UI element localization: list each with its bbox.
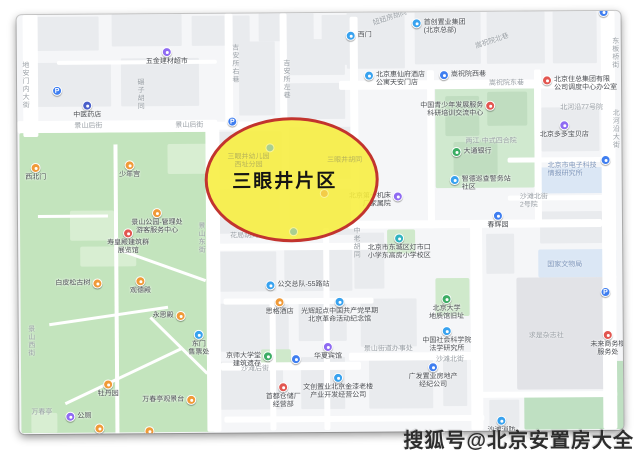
park-admin-icon[interactable] — [152, 208, 162, 218]
viewing-platform-icon[interactable] — [186, 395, 196, 405]
park-structure — [167, 144, 207, 174]
sanyanjing-kindergarten-icon — [265, 143, 274, 152]
memorial-hall-label: 光辉起点中国共产党早期北京革命活动纪念馆 — [301, 308, 378, 325]
hardware-store-icon[interactable] — [162, 47, 172, 57]
parking-icon[interactable]: P — [227, 117, 237, 127]
construction-group-office-label: 北京住总集团有限公司调度中心办公室 — [554, 76, 617, 92]
huaxia-hotel-label: 华夏宾馆 — [314, 353, 342, 361]
ancient-pine-label: 白皮松古树 — [55, 280, 90, 288]
beiheyan-st: 北河沿大街 — [611, 109, 619, 149]
park-poi-icon[interactable] — [144, 426, 154, 434]
yongsi-hall-icon[interactable] — [176, 311, 186, 321]
cass-law-institute-label: 中国社会科学院法学研究所 — [422, 337, 471, 353]
imperial-university-site-label: 京师大学堂建筑遗存 — [226, 352, 261, 368]
road — [601, 11, 618, 429]
ghost-poi — [289, 227, 298, 237]
songzhuyuan-east-lane: 嵩祝院东巷 — [489, 80, 524, 88]
city-block — [553, 11, 597, 63]
memorial-hall-icon[interactable] — [335, 297, 345, 307]
shatan-2-compound: 沙滩北街2号院 — [520, 193, 548, 209]
police-post-label: 智德巡查警务站社区 — [462, 176, 511, 192]
poi-icon[interactable] — [291, 354, 301, 364]
subdistrict-office: 景山街道办事处 — [364, 345, 413, 353]
office-building-icon[interactable] — [603, 330, 613, 340]
jingshan-east-st: 景山东街 — [197, 222, 205, 254]
road — [224, 415, 484, 423]
highlight-label: 三眼井片区 — [232, 166, 351, 194]
park-east-gate-label: 东门售票处 — [188, 341, 209, 357]
sanyanjing-hutong: 三眼井胡同 — [345, 157, 380, 165]
shatan-north-st: 沙滩北街 — [436, 356, 464, 364]
park-northwest-gate-icon[interactable] — [31, 163, 41, 173]
songzhuyuan-west-lane-label: 嵩祝院西巷 — [451, 71, 486, 79]
road — [479, 391, 617, 398]
warehouse-label: 首都仓储厂经营部 — [266, 393, 301, 409]
peony-garden-icon[interactable] — [103, 379, 113, 389]
dianmennei-st: 地安门内大街 — [21, 61, 29, 109]
shouhuang-hall-label: 寿皇殿建筑群展览馆 — [107, 239, 149, 255]
dongbanqiao-st: 东板桥街 — [611, 37, 619, 69]
chunhui-garden-label: 春辉园 — [487, 222, 508, 230]
road — [224, 298, 374, 305]
hotel-apartment-label: 北京惠仙府酒店公寓天安门店 — [376, 71, 425, 87]
youth-center-label: 中国青少年发展服务科研培训交流中心 — [420, 102, 483, 118]
electronics-institute: 北京市电子科技情报研究所 — [548, 162, 597, 178]
courtyard-residence: 两江·中式四合院 — [465, 138, 516, 146]
construction-group-office-icon[interactable] — [542, 75, 552, 85]
park-path — [38, 214, 108, 217]
baby-store-label: 北京多多宝贝店 — [540, 131, 589, 139]
ancient-pine-icon[interactable] — [92, 279, 102, 289]
road — [427, 70, 435, 228]
road — [470, 224, 483, 430]
police-post-icon[interactable] — [450, 175, 460, 185]
city-block — [239, 41, 276, 115]
parking-icon[interactable]: P — [600, 287, 610, 297]
map-photo: 地安门内大街碾子胡同吉安所右巷吉安所左巷景山后街景山后街景山东街景山西街妞妞房胡… — [17, 11, 624, 434]
jingshan-back-st: 景山后街 — [74, 123, 102, 131]
bank-icon[interactable] — [451, 147, 461, 157]
city-block — [33, 62, 111, 107]
warehouse-icon[interactable] — [278, 382, 288, 392]
office-building-label: 未来商务楼服务处 — [590, 341, 623, 357]
west-gate-icon[interactable] — [346, 31, 356, 41]
city-block — [486, 234, 514, 274]
road — [270, 298, 277, 430]
youth-center-icon[interactable] — [485, 101, 495, 111]
youth-palace-icon[interactable] — [125, 160, 135, 170]
wanchun-pavilion: 万春亭 — [31, 409, 52, 417]
city-blocks-layer — [17, 11, 621, 15]
city-block — [112, 14, 182, 46]
guande-hall-label: 观德殿 — [130, 287, 151, 295]
park-east-gate-icon[interactable] — [194, 330, 204, 340]
realty-agency-label: 广发置业房地产经纪公司 — [409, 373, 458, 389]
park-admin-label: 景山公园-管理处游客服务中心 — [131, 219, 182, 235]
realty-agency-icon[interactable] — [428, 362, 438, 372]
pku-geology-hall-icon[interactable] — [442, 294, 452, 304]
bus-stop-icon[interactable] — [265, 280, 275, 290]
tcm-pharmacy-icon[interactable] — [82, 101, 92, 111]
nianzi-hutong: 碾子胡同 — [136, 78, 144, 110]
tcm-pharmacy-label: 中医药店 — [73, 112, 101, 120]
cultural-industry-co-icon[interactable] — [333, 373, 343, 383]
bus-stop-label: 公交总队-55路站 — [277, 281, 329, 289]
capital-development-group-icon[interactable] — [412, 18, 422, 28]
city-block — [287, 83, 345, 119]
park-poi-icon[interactable] — [94, 424, 104, 434]
hotel-icon[interactable] — [275, 297, 285, 307]
baby-store-icon[interactable] — [559, 120, 569, 130]
zhonglao-hutong: 中老胡同 — [352, 227, 360, 259]
shouhuang-hall-icon[interactable] — [123, 228, 133, 238]
ghost-poi-icon — [289, 227, 298, 236]
city-block — [541, 107, 599, 151]
pku-geology-hall-label: 北京大学地质馆旧址 — [429, 305, 464, 321]
bank-label: 大通银行 — [463, 148, 491, 156]
imperial-university-site-icon[interactable] — [263, 351, 273, 361]
restroom-icon[interactable] — [65, 412, 75, 422]
hardware-store-label: 五金建材超市 — [146, 58, 188, 66]
youth-palace-label: 少年宫 — [119, 171, 140, 179]
restroom-label: 公厕 — [77, 413, 91, 421]
beiheyan-77-compound: 北河沿77号院 — [560, 104, 603, 112]
ghost-poi — [320, 189, 329, 199]
cultural-heritage-admin: 国家文物局 — [547, 261, 582, 269]
park-northwest-gate-label: 西北门 — [25, 174, 46, 182]
viewing-platform-label: 万春亭观景台 — [142, 396, 184, 404]
cass-law-institute-icon[interactable] — [442, 326, 452, 336]
ghost-poi-icon — [320, 189, 329, 198]
poi-icon[interactable] — [601, 155, 611, 165]
highlight-ellipse: 三眼井片区 — [204, 117, 379, 243]
city-block — [287, 39, 345, 75]
qiushi-magazine: 求是杂志社 — [529, 332, 564, 340]
jingshan-west-st: 景山西街 — [27, 325, 35, 357]
jingshan-back-st: 景山后街 — [175, 122, 203, 130]
hotel-apartment-icon[interactable] — [364, 71, 374, 81]
sanyanjing-kindergarten: 三眼井幼儿园西址分园 — [248, 143, 290, 169]
songzhuyuan-west-lane-icon[interactable] — [439, 70, 449, 80]
peony-garden-label: 牡丹园 — [98, 390, 119, 398]
huaxia-hotel-icon[interactable] — [323, 342, 333, 352]
yongsi-hall-label: 永思殿 — [153, 312, 174, 320]
hotel-label: 思格酒店 — [266, 308, 294, 316]
capital-development-group-label: 首创置业集团(北京总部) — [424, 19, 466, 35]
chunhui-garden-icon[interactable] — [493, 211, 503, 221]
city-block — [37, 17, 99, 51]
jiansuo-right-lane: 吉安所右巷 — [231, 44, 239, 84]
screenshot-root: { "watermark": { "text": "搜狐号@北京安置房大全" }… — [0, 0, 640, 456]
watermark: 搜狐号@北京安置房大全 — [403, 424, 634, 453]
west-gate-label: 西门 — [358, 32, 372, 40]
cultural-industry-co-label: 文创置业北京金漆老楼产业开发经营公司 — [303, 384, 373, 400]
guande-hall-icon[interactable] — [135, 276, 145, 286]
residential-compound-icon[interactable] — [393, 191, 403, 201]
parking-icon[interactable]: P — [52, 86, 62, 96]
primary-school-label: 北京市东城区灯市口小学东高房小学校区 — [368, 244, 431, 260]
jiansuo-left-lane: 吉安所左巷 — [282, 59, 290, 99]
primary-school-icon[interactable] — [394, 233, 404, 243]
